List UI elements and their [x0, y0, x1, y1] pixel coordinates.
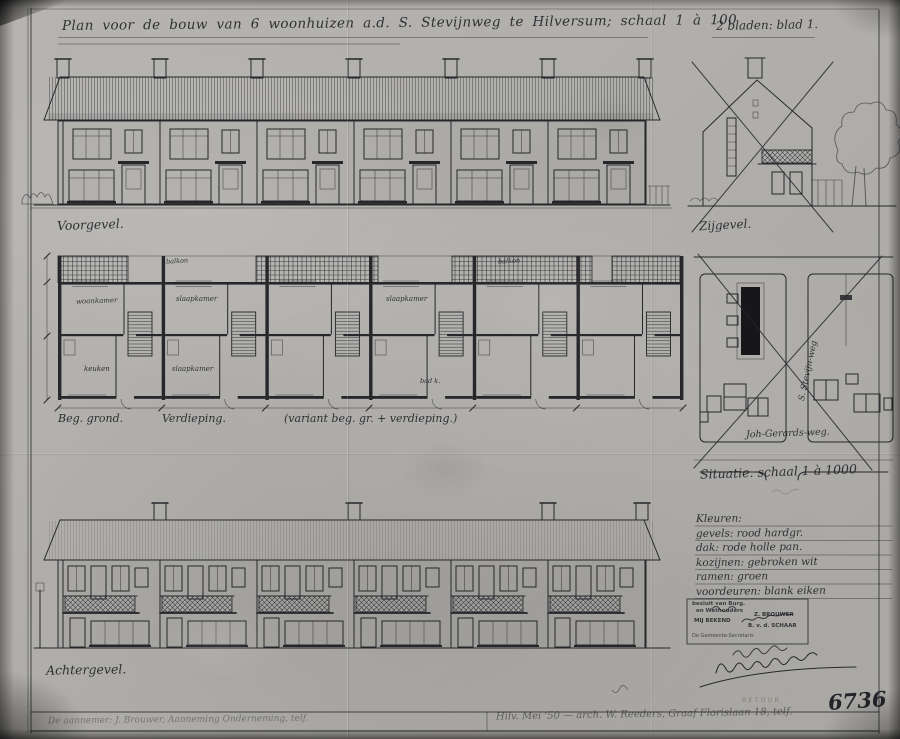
room-label-balkon-2: balkon: [498, 257, 520, 265]
plan-floor-label: Verdieping.: [162, 413, 226, 424]
drawing-number: 6736: [827, 688, 887, 713]
side-elevation-label: Zijgevel.: [699, 218, 752, 233]
room-label-woonkamer: woonkamer: [76, 297, 118, 305]
fold-crease-vertical-1: [347, 0, 348, 739]
retour-mark: RETOUR: [742, 697, 781, 704]
front-elevation-label: Voorgevel.: [57, 218, 124, 233]
stamp-line-1: besluit van Burg.: [692, 602, 745, 608]
legend-items: gevels: rood hardgr.dak: rode holle pan.…: [696, 526, 896, 599]
side-elevation-drawing: [688, 58, 900, 232]
color-legend: Kleuren: gevels: rood hardgr.dak: rode h…: [696, 511, 896, 598]
legend-item: ramen: groen: [696, 568, 896, 585]
stamp-name-1: Z. BROUWER: [754, 613, 794, 619]
blueprint-sheet: Plan voor de bouw van 6 woonhuizen a.d. …: [0, 0, 900, 739]
stamp-line-2: en Wethouders: [696, 609, 743, 615]
stamp-line-3: MIJ BEKEND: [694, 619, 731, 625]
room-label-slaapkamer-1: slaapkamer: [176, 296, 217, 303]
room-label-slaapkamer-2: slaapkamer: [172, 366, 213, 373]
stamp-name-2: B. v. d. SCHAAR: [748, 624, 797, 630]
situation-plan-drawing: [694, 254, 893, 494]
floor-plans-drawing: [44, 253, 686, 411]
plan-variant-label: (variant beg. gr. + verdieping.): [284, 413, 457, 424]
title-rules: [58, 38, 815, 45]
rear-elevation-drawing: [34, 503, 670, 648]
fold-crease-vertical-2: [651, 0, 652, 739]
fold-crease-horizontal: [0, 453, 900, 454]
room-label-keuken: keuken: [84, 366, 110, 373]
pages-note: 2 bladen: blad 1.: [716, 18, 818, 32]
stamp-line-4: De Gemeente-Secretaris: [692, 634, 754, 639]
rear-elevation-label: Achtergevel.: [46, 663, 127, 677]
room-label-balkon-1: balkon: [166, 257, 188, 265]
plan-ground-label: Beg. grond.: [58, 413, 123, 424]
room-label-badkamer: bad k.: [420, 378, 440, 385]
legend-heading: Kleuren:: [696, 510, 896, 527]
legend-item: dak: rode holle pan.: [696, 539, 896, 556]
room-label-slaapkamer-3: slaapkamer: [386, 296, 427, 303]
legend-item: voordeuren: blank eiken: [696, 582, 896, 599]
